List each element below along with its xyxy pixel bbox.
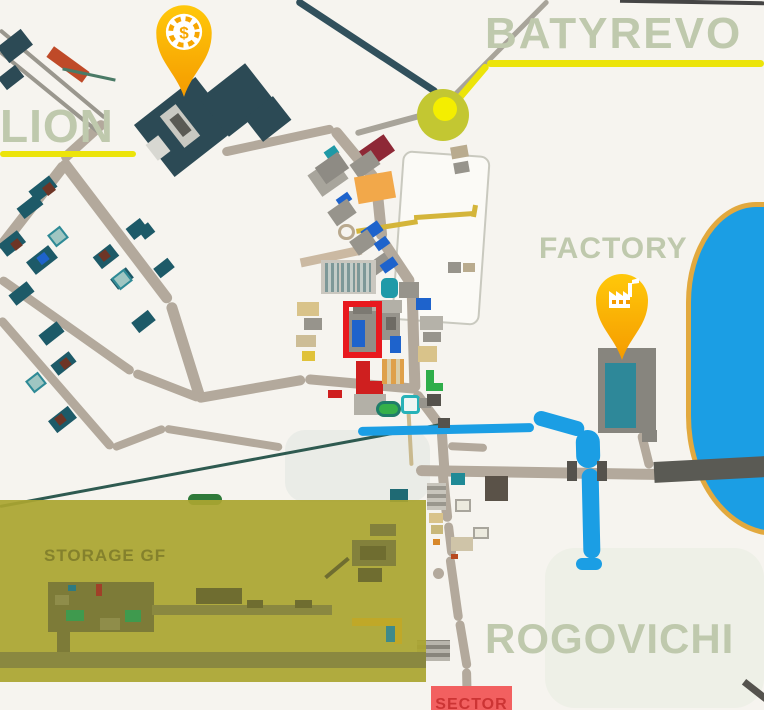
factory-icon <box>590 270 654 362</box>
sector-badge: SECTOR <box>431 686 512 710</box>
factory-pin[interactable] <box>590 270 654 362</box>
label-connector-line <box>487 60 764 67</box>
batyrevo-circle-marker[interactable] <box>417 89 469 141</box>
label-rogovichi: ROGOVICHI <box>485 618 734 660</box>
circle-marker-core <box>433 97 457 121</box>
map-canvas[interactable]: STORAGE GF LION BATYREVO FACTORY ROGOVIC… <box>0 0 764 710</box>
label-batyrevo: BATYREVO <box>485 12 742 56</box>
svg-text:$: $ <box>179 23 189 42</box>
money-trader-pin[interactable]: $ <box>152 0 216 100</box>
building-selection-rect[interactable] <box>343 301 382 358</box>
poker-chip-dollar-icon: $ <box>152 0 216 100</box>
label-factory: FACTORY <box>539 234 688 264</box>
label-lion: LION <box>0 103 114 149</box>
